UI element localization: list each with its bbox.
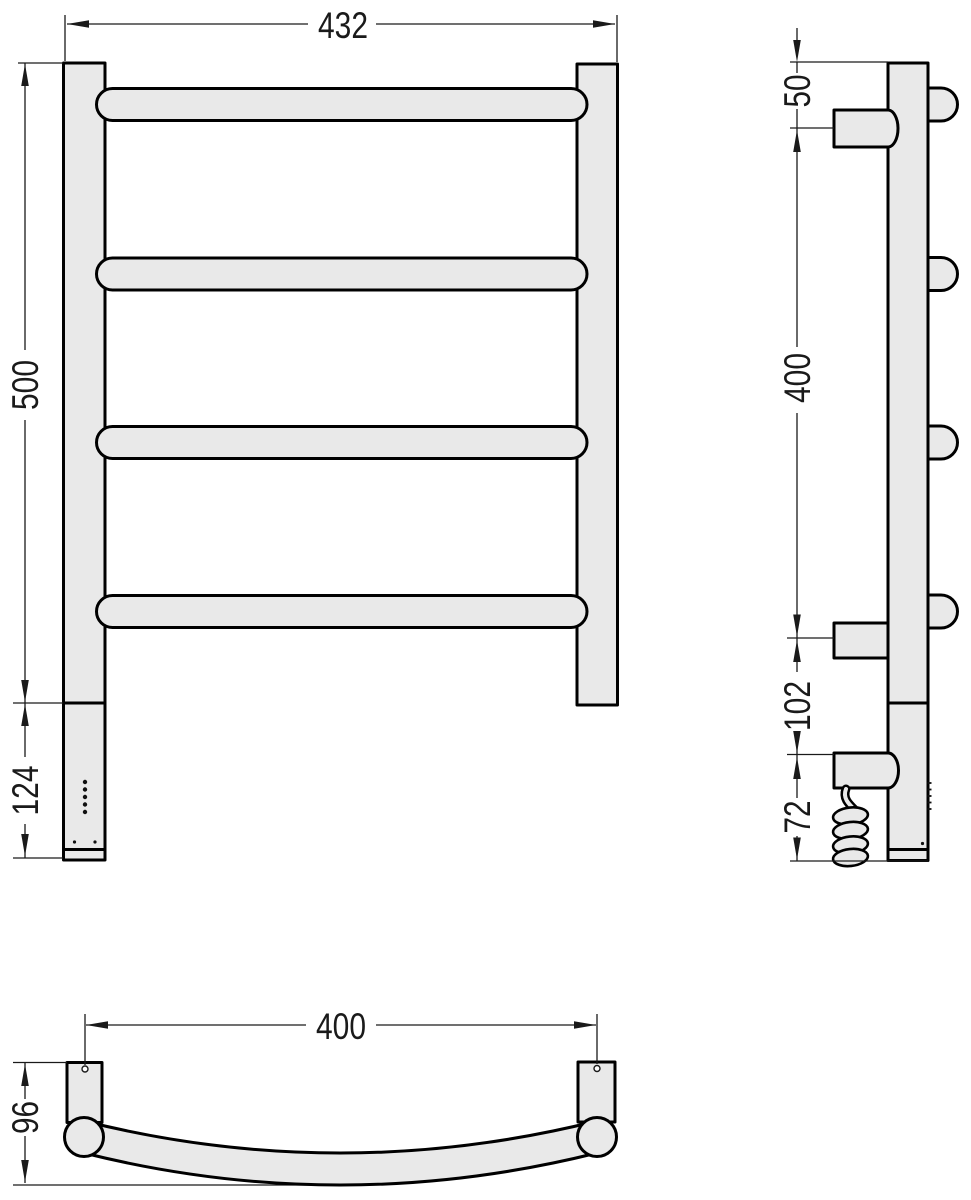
indicator-dot	[83, 795, 87, 799]
side-post	[888, 63, 928, 850]
side-bar-end-1	[928, 88, 958, 121]
dim-front-lower-label: 124	[5, 766, 46, 816]
dim-side-bottom-label: 72	[777, 801, 818, 834]
dim-front-height-label: 500	[5, 360, 46, 410]
arrowhead	[793, 40, 801, 62]
arrowhead	[593, 20, 615, 28]
housing-screw-dot	[93, 840, 96, 843]
arrowhead	[574, 1021, 596, 1029]
arrowhead	[21, 834, 29, 856]
dim-front-width-label: 432	[318, 5, 368, 46]
plan-view: 400 96	[5, 1006, 617, 1185]
indicator-dot	[83, 780, 87, 784]
arrowhead	[21, 1064, 29, 1086]
arrowhead	[21, 64, 29, 86]
plan-right-mount-hole	[594, 1066, 600, 1072]
arrowhead	[793, 615, 801, 637]
drawing-canvas: 432 500 124	[0, 0, 971, 1200]
front-view: 432 500 124	[5, 5, 618, 860]
housing-screw-dot	[73, 840, 76, 843]
side-bar-end-3	[928, 426, 958, 459]
dim-plan-mount-span: 400	[85, 1006, 597, 1065]
arrowhead	[21, 680, 29, 702]
indicator-dot	[83, 802, 87, 806]
towel-rail-technical-drawing: 432 500 124	[0, 0, 971, 1200]
plan-left-mount-hole	[82, 1066, 88, 1072]
side-screw-dot	[921, 842, 924, 845]
coiled-power-cable	[832, 789, 869, 868]
plan-right-post-section	[578, 1118, 617, 1157]
wall-bracket-top	[834, 110, 898, 147]
dim-plan-depth: 96	[5, 1063, 67, 1184]
wall-bracket-bottom	[834, 623, 888, 658]
arrowhead	[21, 1160, 29, 1182]
arrowhead	[793, 838, 801, 860]
towel-bar-2	[97, 258, 588, 290]
front-left-post-bottom-cap	[64, 850, 106, 861]
dim-plan-span-label: 400	[316, 1006, 366, 1047]
curved-bar-profile	[84, 1121, 597, 1185]
side-view: 50 400 102 72	[777, 28, 958, 868]
dim-side-bracket-span-label: 400	[777, 353, 818, 403]
indicator-dot	[83, 787, 87, 791]
arrowhead	[793, 731, 801, 753]
dim-front-height: 500	[5, 63, 63, 703]
towel-bar-3	[97, 427, 588, 459]
side-bar-end-2	[928, 258, 958, 291]
arrowhead	[67, 20, 89, 28]
arrowhead	[86, 1021, 108, 1029]
dim-plan-depth-label: 96	[5, 1101, 46, 1134]
towel-bar-1	[97, 89, 588, 121]
front-left-post	[64, 63, 106, 850]
plan-left-post-section	[65, 1118, 104, 1157]
towel-bar-4	[97, 596, 588, 628]
side-post-bottom-cap	[888, 850, 928, 861]
indicator-dot	[83, 810, 87, 814]
dim-front-width: 432	[65, 5, 617, 62]
dim-side-top-offset-label: 50	[777, 75, 818, 108]
arrowhead	[21, 704, 29, 726]
dim-front-lower-housing: 124	[5, 703, 63, 858]
dim-side-heater-gap-label: 102	[777, 681, 818, 731]
heating-element-housing	[834, 753, 899, 788]
side-bar-end-4	[928, 595, 958, 628]
